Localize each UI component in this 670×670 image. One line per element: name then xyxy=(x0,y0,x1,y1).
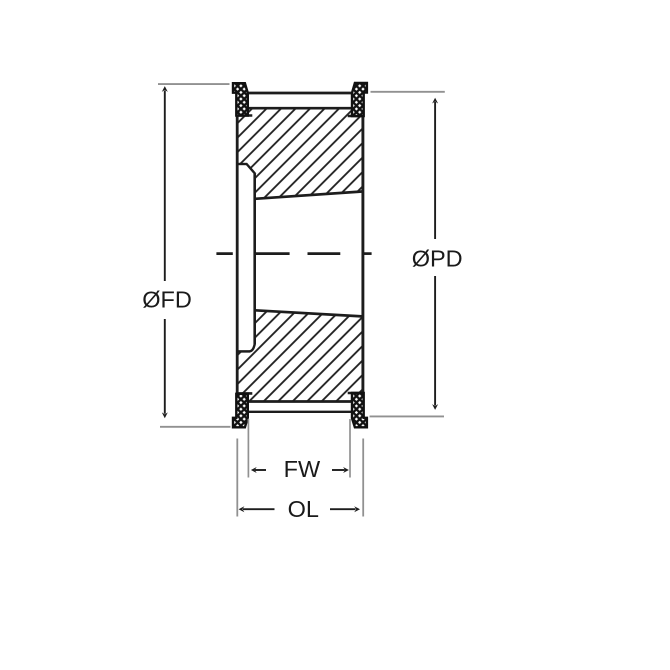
svg-text:ØPD: ØPD xyxy=(412,246,463,272)
svg-text:OL: OL xyxy=(288,496,319,522)
svg-text:ØFD: ØFD xyxy=(142,287,192,313)
svg-text:FW: FW xyxy=(284,456,321,482)
